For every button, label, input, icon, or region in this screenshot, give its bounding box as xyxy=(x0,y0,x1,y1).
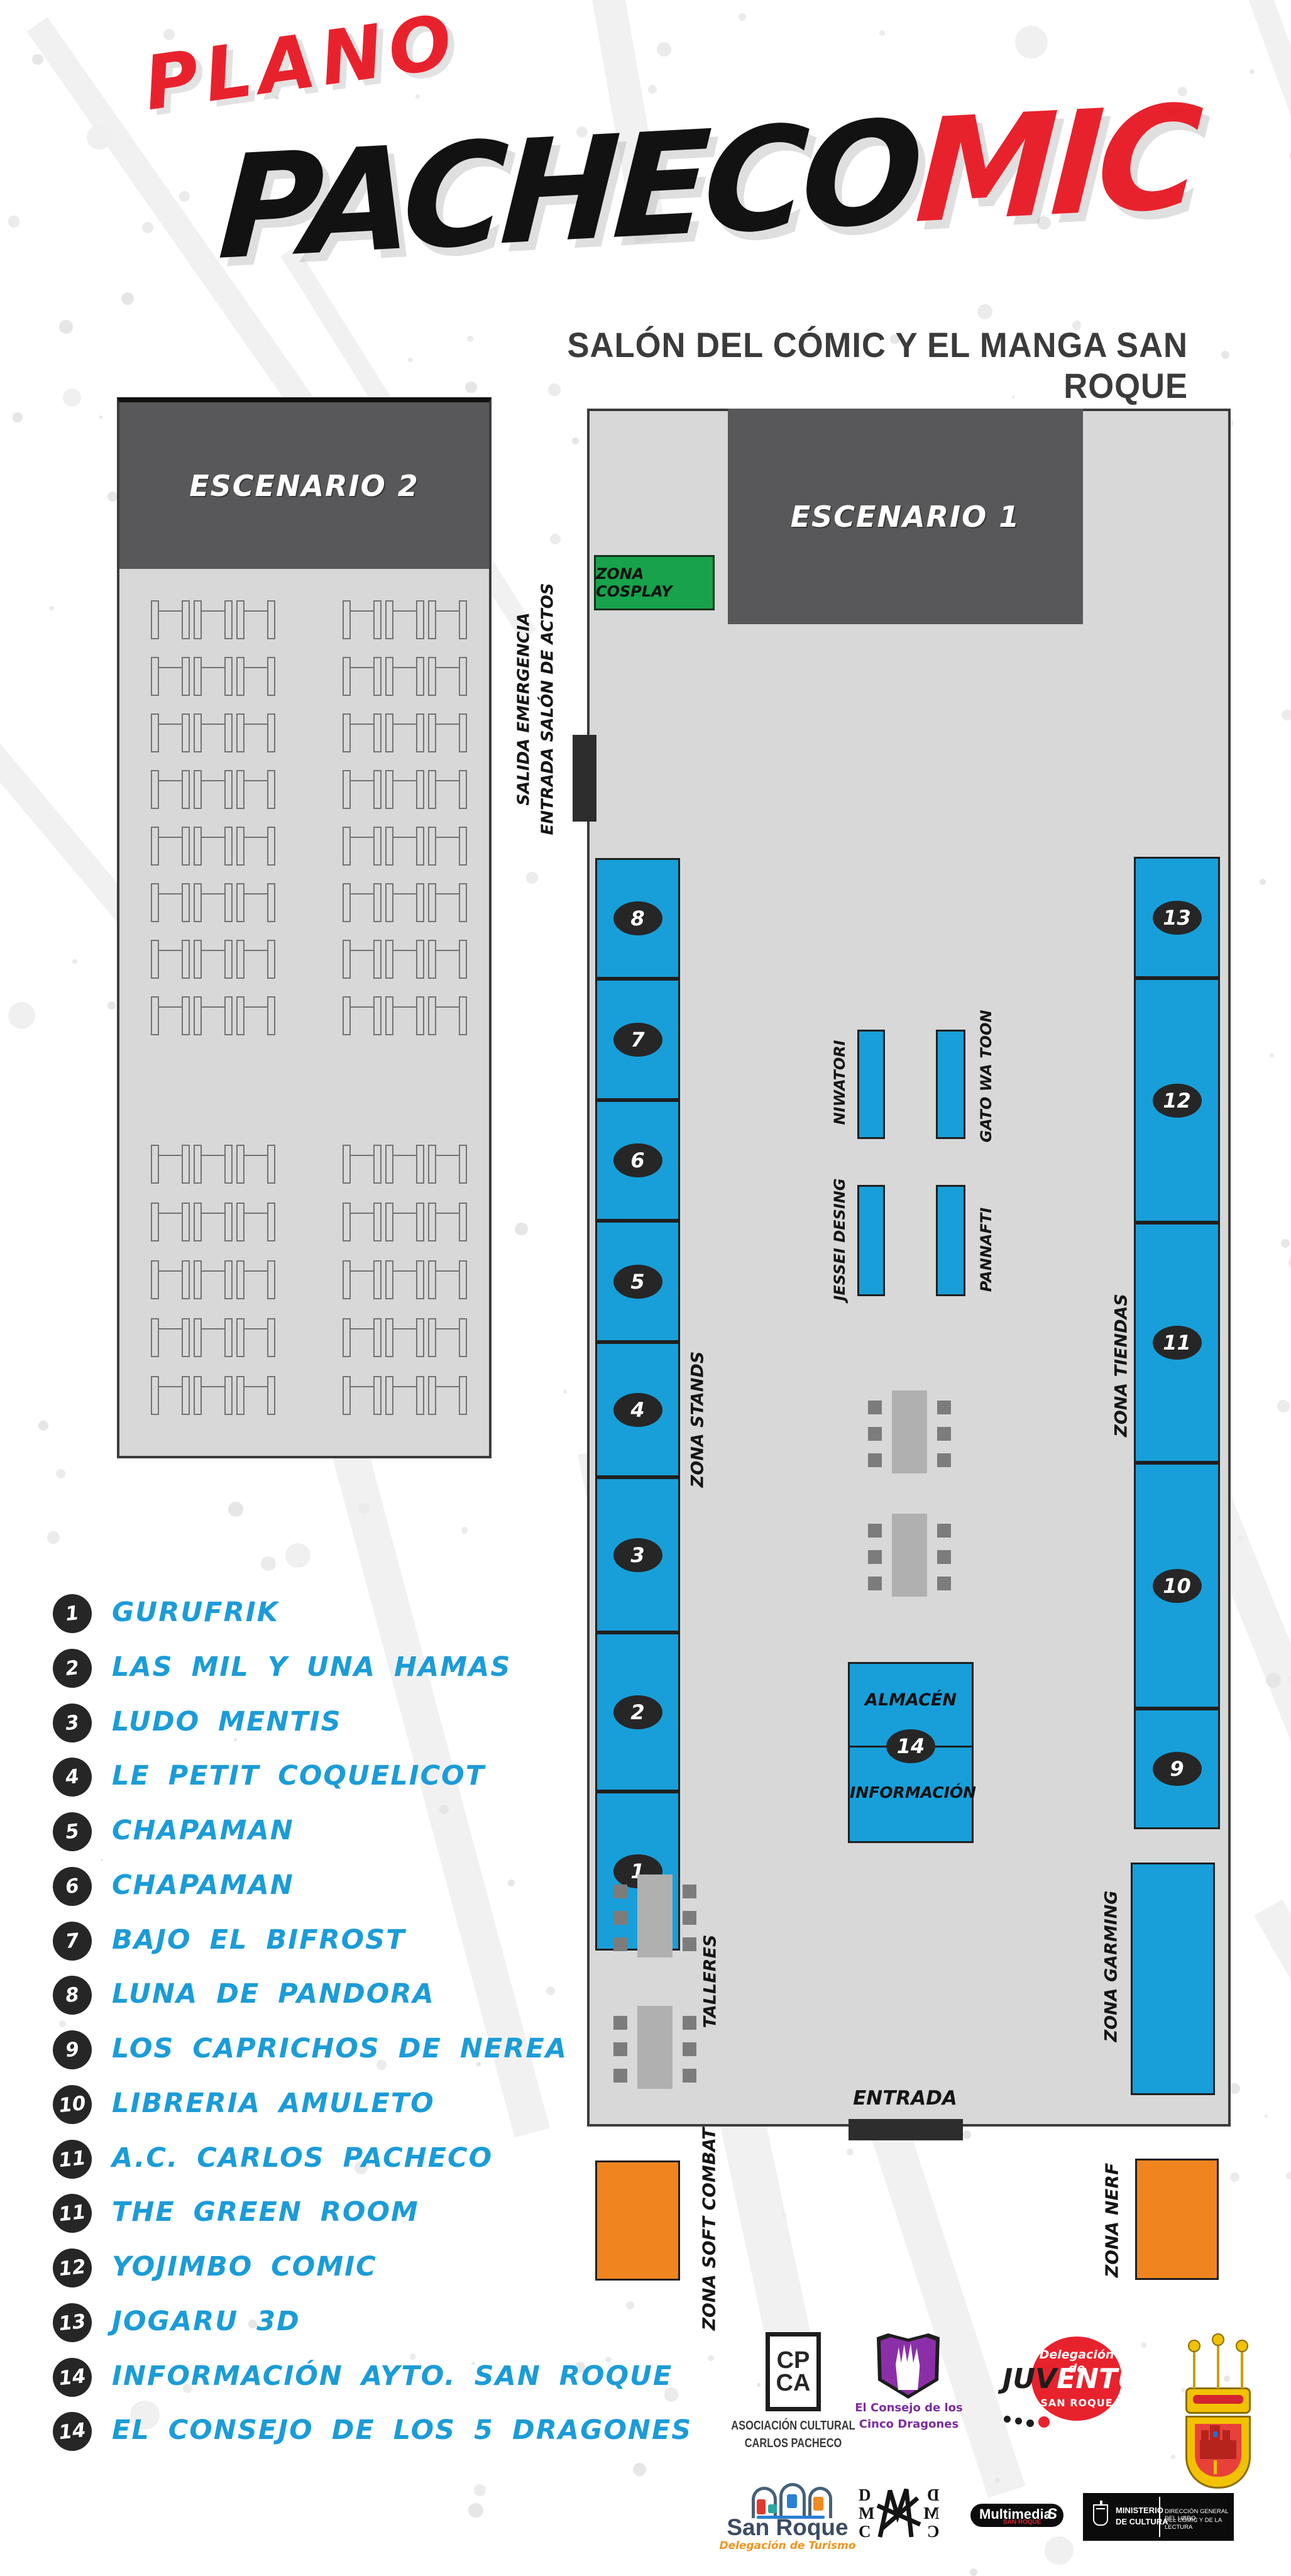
seat-table-top xyxy=(393,1270,416,1272)
seat-table-top xyxy=(436,724,459,725)
seat-table-leg xyxy=(194,1260,202,1299)
seat-table-top xyxy=(244,667,267,668)
chair-icon xyxy=(937,1577,951,1590)
seat-table-leg xyxy=(151,1260,159,1299)
seat-table-leg xyxy=(428,1145,436,1184)
seat-table-leg xyxy=(267,600,275,639)
seat-table-leg xyxy=(194,1203,202,1241)
seat-table-leg xyxy=(373,770,382,809)
seat-table-leg xyxy=(182,600,190,639)
seat-table-top xyxy=(393,950,416,951)
seat-table-top xyxy=(244,950,267,951)
seat-table-leg xyxy=(459,1376,467,1415)
seat-table-leg xyxy=(182,657,190,696)
seat-table-leg xyxy=(182,940,190,979)
juventud-logo: Delegación de JUVENTUD SAN ROQUE xyxy=(1031,2337,1122,2421)
seat-table-leg xyxy=(459,1145,467,1184)
seat-table-leg xyxy=(343,827,351,866)
title-subtitle: SALÓN DEL CÓMIC Y EL MANGA SAN ROQUE xyxy=(479,324,1188,406)
seat-table-leg xyxy=(373,883,382,922)
seat-table-leg xyxy=(416,1203,424,1241)
juventud-bottom-text: SAN ROQUE xyxy=(1031,2397,1122,2409)
dmc-letter-c-mirror: C xyxy=(927,2523,940,2540)
stand-box-9: 9 xyxy=(1134,1709,1220,1829)
crown-stem-icon xyxy=(1241,2352,1243,2389)
zona-nerf-box xyxy=(1135,2159,1219,2280)
seat-table-leg xyxy=(373,940,382,979)
chair-icon xyxy=(937,1427,951,1441)
stage-escenario-2: ESCENARIO 2 xyxy=(119,402,489,569)
seat-table-leg xyxy=(459,940,467,979)
seat-table-top xyxy=(393,1328,416,1329)
seat-table-leg xyxy=(373,1145,382,1184)
seat-table-leg xyxy=(224,770,233,809)
seat-table-top xyxy=(202,667,224,668)
emergency-exit-label: SALIDA EMERGENCIA ENTRADA SALÓN DE ACTOS xyxy=(512,583,559,835)
turismo-orange-shape xyxy=(813,2497,823,2511)
emergency-exit-label-line1: SALIDA EMERGENCIA xyxy=(512,583,536,835)
seat-table-leg xyxy=(267,657,275,696)
seat-table-leg xyxy=(416,657,424,696)
chair-icon xyxy=(613,2042,627,2056)
seat-table-top xyxy=(436,1155,459,1156)
ministerio-divider xyxy=(1159,2497,1160,2537)
seat-table-leg xyxy=(428,940,436,979)
seat-table-leg xyxy=(385,1260,393,1299)
seat-table-leg xyxy=(151,1376,159,1415)
stand-box-11: 11 xyxy=(1134,1223,1220,1463)
seat-table-leg xyxy=(267,1260,275,1299)
seat-table-leg xyxy=(385,657,393,696)
zona-stands-label: ZONA STANDS xyxy=(688,1351,708,1488)
seat-table-top xyxy=(202,724,224,725)
multimedia-logo: Multimedia SAN ROQUE S xyxy=(970,2504,1063,2527)
legend-number-badge: 11 xyxy=(51,2192,94,2235)
seat-table-leg xyxy=(151,883,159,922)
turismo-name: San Roque xyxy=(727,2514,848,2541)
seat-table-leg xyxy=(151,996,159,1035)
seat-table-top xyxy=(393,837,416,838)
seat-table-leg xyxy=(236,1260,244,1299)
stand-box-6: 6 xyxy=(595,1100,680,1221)
seat-table-leg xyxy=(236,827,244,866)
seat-table-top xyxy=(159,1006,182,1008)
stand-number-7: 7 xyxy=(613,1023,662,1057)
seat-table-leg xyxy=(194,600,202,639)
title-brand-black: PACHECO xyxy=(215,89,921,292)
seat-table-leg xyxy=(236,657,244,696)
seat-table-top xyxy=(244,1328,267,1329)
seat-table-leg xyxy=(151,1145,159,1184)
dmc-letter-c: C xyxy=(859,2523,871,2540)
legend-item-label: EL CONSEJO DE LOS 5 DRAGONES xyxy=(112,2414,692,2446)
seat-table-top xyxy=(351,1328,373,1329)
seat-table-top xyxy=(393,780,416,781)
chair-icon xyxy=(613,2016,627,2030)
seat-table-top xyxy=(202,780,224,781)
stand-box-3: 3 xyxy=(595,1477,680,1632)
juventud-dot-icon xyxy=(1038,2416,1050,2428)
stand-number-6: 6 xyxy=(613,1143,662,1177)
chair-icon xyxy=(683,2069,696,2083)
seat-table-top xyxy=(202,950,224,951)
seat-table-leg xyxy=(385,1318,393,1357)
seat-table-leg xyxy=(236,996,244,1035)
seat-table-leg xyxy=(428,713,436,752)
seat-table-leg xyxy=(182,1203,190,1241)
seat-table-top xyxy=(351,1386,373,1387)
legend-number-badge: 8 xyxy=(51,1974,94,2017)
seat-table-leg xyxy=(182,996,190,1035)
seat-table-leg xyxy=(459,883,467,922)
key-icon xyxy=(1214,2460,1217,2474)
legend-number-badge: 6 xyxy=(51,1865,94,1908)
seat-table-leg xyxy=(236,713,244,752)
turismo-red-shape xyxy=(757,2499,766,2514)
seat-table-top xyxy=(202,837,224,838)
stand-box-10: 10 xyxy=(1134,1463,1220,1709)
seat-table-leg xyxy=(343,770,351,809)
chair-icon xyxy=(868,1577,882,1590)
seat-table-leg xyxy=(428,657,436,696)
seat-table-top xyxy=(393,1006,416,1008)
seat-table-leg xyxy=(373,713,382,752)
legend-number-badge: 7 xyxy=(51,1920,94,1962)
seat-table-top xyxy=(436,1328,459,1329)
legend-item-label: GURUFRIK xyxy=(112,1597,279,1628)
entrada-label: ENTRADA xyxy=(853,2087,957,2110)
legend-number-badge: 13 xyxy=(51,2301,94,2344)
seat-table-leg xyxy=(385,1145,393,1184)
seat-table-top xyxy=(436,780,459,781)
table-icon xyxy=(637,2006,673,2089)
legend-item-label: LUDO MENTIS xyxy=(112,1706,342,1737)
seat-table-top xyxy=(436,950,459,951)
mini-stand-label: JESSEI DESING xyxy=(831,1178,849,1301)
seat-table-leg xyxy=(151,1318,159,1357)
seat-table-top xyxy=(244,1006,267,1008)
stand-number-2: 2 xyxy=(613,1695,662,1729)
cinco-dragones-shield-icon xyxy=(877,2333,940,2399)
seat-table-leg xyxy=(373,1318,382,1357)
seat-table-leg xyxy=(416,1260,424,1299)
seat-table-leg xyxy=(343,1203,351,1241)
seat-table-leg xyxy=(224,713,233,752)
legend-item-label: LOS CAPRICHOS DE NEREA xyxy=(112,2033,568,2064)
seat-table-leg xyxy=(194,883,202,922)
castle-shield-icon xyxy=(1185,2416,1251,2489)
seat-table-top xyxy=(351,950,373,951)
seat-table-leg xyxy=(236,1318,244,1357)
cpca-logo: CP CA xyxy=(766,2332,821,2411)
legend-item-label: A.C. CARLOS PACHECO xyxy=(112,2142,493,2174)
seat-table-top xyxy=(159,950,182,951)
seat-table-top xyxy=(351,1213,373,1214)
seat-table-top xyxy=(159,724,182,725)
zona-cosplay-box: ZONA COSPLAY xyxy=(594,555,715,610)
legend-number-badge: 3 xyxy=(51,1702,94,1744)
seat-table-leg xyxy=(151,657,159,696)
seat-table-leg xyxy=(224,600,233,639)
spain-coat-icon xyxy=(1093,2504,1108,2526)
seat-table-leg xyxy=(343,600,351,639)
chair-icon xyxy=(868,1550,882,1564)
ministerio-logo: MINISTERIO DE CULTURA DIRECCIÓN GENERAL … xyxy=(1083,2493,1234,2541)
dmc-letter-m: M xyxy=(859,2505,874,2522)
title-brand: PACHECOMIC xyxy=(215,75,1200,292)
seat-table-leg xyxy=(194,657,202,696)
seat-table-leg xyxy=(236,1203,244,1241)
zona-soft-combat-box xyxy=(595,2160,680,2281)
seat-table-leg xyxy=(343,1145,351,1184)
seat-table-leg xyxy=(428,883,436,922)
seat-table-leg xyxy=(224,996,233,1035)
seat-table-leg xyxy=(373,827,382,866)
seat-table-top xyxy=(244,724,267,725)
seat-table-top xyxy=(436,610,459,612)
seat-table-leg xyxy=(385,770,393,809)
legend-item-label: YOJIMBO COMIC xyxy=(112,2251,377,2282)
ministerio-line1: MINISTERIO xyxy=(1116,2506,1163,2515)
dmc-art-icon xyxy=(874,2487,924,2541)
seat-table-top xyxy=(351,837,373,838)
stand-number-10: 10 xyxy=(1153,1569,1202,1603)
seat-table-top xyxy=(244,837,267,838)
stand-number-8: 8 xyxy=(613,901,662,935)
seat-table-leg xyxy=(343,996,351,1035)
stand-number-9: 9 xyxy=(1153,1752,1202,1786)
seat-table-leg xyxy=(459,1203,467,1241)
seat-table-leg xyxy=(182,1260,190,1299)
legend-number-badge: 2 xyxy=(51,1647,94,1690)
juventud-wordmark: JUVENTUD xyxy=(1003,2363,1163,2395)
seat-table-top xyxy=(393,1155,416,1156)
chair-icon xyxy=(613,1937,627,1951)
seat-table-leg xyxy=(385,1203,393,1241)
cpca-line2: CA xyxy=(776,2372,811,2394)
seat-table-leg xyxy=(151,940,159,979)
seat-table-leg xyxy=(373,657,382,696)
crown-finial-icon xyxy=(1236,2340,1248,2352)
multimedia-sub: SAN ROQUE xyxy=(1003,2519,1041,2526)
seat-table-leg xyxy=(385,600,393,639)
seat-table-top xyxy=(202,610,224,612)
legend-item-label: INFORMACIÓN AYTO. SAN ROQUE xyxy=(112,2360,673,2392)
seat-table-top xyxy=(202,1155,224,1156)
turismo-blue-shape xyxy=(787,2494,797,2508)
chair-icon xyxy=(868,1401,882,1414)
almacen-informacion-box: ALMACÉN INFORMACIÓN 14 xyxy=(848,1662,974,1843)
mini-stand-label: PANNAFTI xyxy=(977,1208,995,1292)
seat-table-top xyxy=(202,1006,224,1008)
legend-number-badge: 14 xyxy=(51,2356,94,2399)
seat-table-top xyxy=(436,1270,459,1272)
seat-table-top xyxy=(159,667,182,668)
dmc-letter-m-mirror: M xyxy=(923,2505,939,2522)
seat-table-leg xyxy=(428,600,436,639)
seat-table-top xyxy=(202,1386,224,1387)
legend-item-label: CHAPAMAN xyxy=(112,1869,294,1901)
chair-icon xyxy=(613,2069,627,2083)
seat-table-top xyxy=(393,610,416,612)
seat-table-top xyxy=(159,1386,182,1387)
emergency-exit-label-line2: ENTRADA SALÓN DE ACTOS xyxy=(536,583,560,835)
seat-table-leg xyxy=(151,1203,159,1241)
seat-table-leg xyxy=(373,996,382,1035)
seat-table-leg xyxy=(182,883,190,922)
seat-table-leg xyxy=(428,1260,436,1299)
stand-number-11: 11 xyxy=(1153,1326,1202,1360)
seat-table-leg xyxy=(267,940,275,979)
seat-table-leg xyxy=(416,996,424,1035)
title-brand-red: MIC xyxy=(912,75,1200,255)
seat-table-leg xyxy=(194,1318,202,1357)
seat-table-top xyxy=(393,724,416,725)
crown-finial-icon xyxy=(1212,2333,1224,2346)
seat-table-leg xyxy=(267,1376,275,1415)
legend-number-badge: 12 xyxy=(51,2247,94,2289)
mini-stand-label: GATO WA TOON xyxy=(977,1010,995,1143)
legend-number-badge: 9 xyxy=(51,2028,94,2071)
seat-table-leg xyxy=(236,883,244,922)
seat-table-top xyxy=(159,893,182,894)
seat-table-top xyxy=(436,1386,459,1387)
title-kicker: PLANO xyxy=(139,0,463,127)
chair-icon xyxy=(937,1524,951,1538)
seat-table-top xyxy=(351,893,373,894)
stand-number-4: 4 xyxy=(613,1393,662,1427)
multimedia-swoosh-icon: S xyxy=(1047,2506,1057,2523)
dragones-caption2: Cinco Dragones xyxy=(859,2418,959,2431)
seat-table-leg xyxy=(267,1318,275,1357)
seat-table-leg xyxy=(151,827,159,866)
seat-table-leg xyxy=(182,770,190,809)
seat-table-leg xyxy=(267,883,275,922)
seat-table-top xyxy=(159,837,182,838)
seat-table-leg xyxy=(224,883,233,922)
table-icon xyxy=(892,1390,927,1473)
seat-table-leg xyxy=(416,1145,424,1184)
seat-table-top xyxy=(436,1006,459,1008)
mini-stand-box xyxy=(857,1030,885,1139)
seat-table-top xyxy=(393,1213,416,1214)
entrada-door xyxy=(849,2119,963,2140)
chair-icon xyxy=(868,1453,882,1467)
zona-soft-combat-label: ZONA SOFT COMBAT xyxy=(699,2128,720,2331)
seat-table-leg xyxy=(459,770,467,809)
seat-table-leg xyxy=(182,1145,190,1184)
legend-item-label: LE PETIT COQUELICOT xyxy=(112,1760,485,1792)
zona-garming-box xyxy=(1131,1863,1215,2095)
juventud-dot-icon xyxy=(1026,2419,1034,2427)
seat-table-top xyxy=(202,1328,224,1329)
shield-field xyxy=(1195,2424,1241,2477)
seat-table-leg xyxy=(267,1203,275,1241)
juventud-white-part: ENTUD xyxy=(1057,2363,1163,2395)
seat-table-top xyxy=(159,1213,182,1214)
legend-item-label: LIBRERIA AMULETO xyxy=(112,2088,435,2119)
castle-tower-icon xyxy=(1201,2430,1209,2441)
seat-table-leg xyxy=(343,1260,351,1299)
seat-table-leg xyxy=(343,657,351,696)
seat-table-leg xyxy=(182,713,190,752)
seat-table-leg xyxy=(236,940,244,979)
seat-table-leg xyxy=(428,1376,436,1415)
legend-number-badge: 14 xyxy=(51,2410,94,2453)
seat-table-top xyxy=(351,724,373,725)
mini-stand-box xyxy=(936,1185,965,1296)
seat-table-leg xyxy=(224,1145,233,1184)
cpca-caption2: CARLOS PACHECO xyxy=(726,2436,860,2451)
seat-table-leg xyxy=(224,657,233,696)
ministerio-line2: DE CULTURA xyxy=(1116,2517,1168,2526)
seat-table-leg xyxy=(236,1145,244,1184)
seat-table-leg xyxy=(428,1203,436,1241)
turismo-teal-shape xyxy=(768,2504,777,2513)
seat-table-leg xyxy=(224,1376,233,1415)
seat-table-top xyxy=(244,1155,267,1156)
seat-table-leg xyxy=(416,883,424,922)
seat-table-leg xyxy=(236,770,244,809)
seat-table-leg xyxy=(343,1376,351,1415)
juventud-black-part: JUV xyxy=(1003,2363,1057,2395)
dmc-letter-d: D xyxy=(859,2487,871,2504)
chair-icon xyxy=(683,1937,696,1951)
table-icon xyxy=(637,1874,673,1957)
seat-table-leg xyxy=(267,713,275,752)
chair-icon xyxy=(683,2016,696,2030)
seat-table-top xyxy=(244,610,267,612)
seat-table-leg xyxy=(385,713,393,752)
dmc-letter-d-mirror: D xyxy=(927,2487,940,2504)
crown-stem-icon xyxy=(1193,2352,1195,2389)
seat-table-top xyxy=(244,1213,267,1214)
seat-table-top xyxy=(351,1006,373,1008)
seat-table-leg xyxy=(428,1318,436,1357)
legend-item-label: BAJO EL BIFROST xyxy=(112,1924,405,1956)
stand-number-14: 14 xyxy=(886,1729,935,1763)
seat-table-leg xyxy=(373,1203,382,1241)
seat-table-leg xyxy=(267,996,275,1035)
crown-finial-icon xyxy=(1188,2340,1200,2352)
seat-table-leg xyxy=(267,827,275,866)
seat-table-leg xyxy=(224,940,233,979)
seat-table-leg xyxy=(416,1376,424,1415)
seat-table-leg xyxy=(385,1376,393,1415)
seat-table-leg xyxy=(343,883,351,922)
seat-table-leg xyxy=(416,600,424,639)
stand-box-5: 5 xyxy=(595,1221,680,1342)
seat-table-top xyxy=(436,667,459,668)
seat-table-leg xyxy=(459,1260,467,1299)
chair-icon xyxy=(937,1401,951,1414)
stand-box-4: 4 xyxy=(595,1342,680,1477)
cpca-caption1: ASOCIACIÓN CULTURAL xyxy=(726,2419,860,2433)
juventud-dot-icon xyxy=(1015,2418,1022,2425)
mini-stand-box xyxy=(936,1030,965,1139)
crown-stem-icon xyxy=(1217,2346,1219,2389)
seat-table-top xyxy=(436,837,459,838)
seat-table-top xyxy=(244,1270,267,1272)
seat-table-leg xyxy=(416,827,424,866)
seat-table-top xyxy=(159,1155,182,1156)
seat-table-leg xyxy=(385,883,393,922)
mini-stand-label: NIWATORI xyxy=(831,1040,849,1125)
mini-stand-box xyxy=(857,1185,885,1296)
seat-table-leg xyxy=(194,1376,202,1415)
chair-icon xyxy=(613,1911,627,1925)
seat-table-leg xyxy=(459,657,467,696)
